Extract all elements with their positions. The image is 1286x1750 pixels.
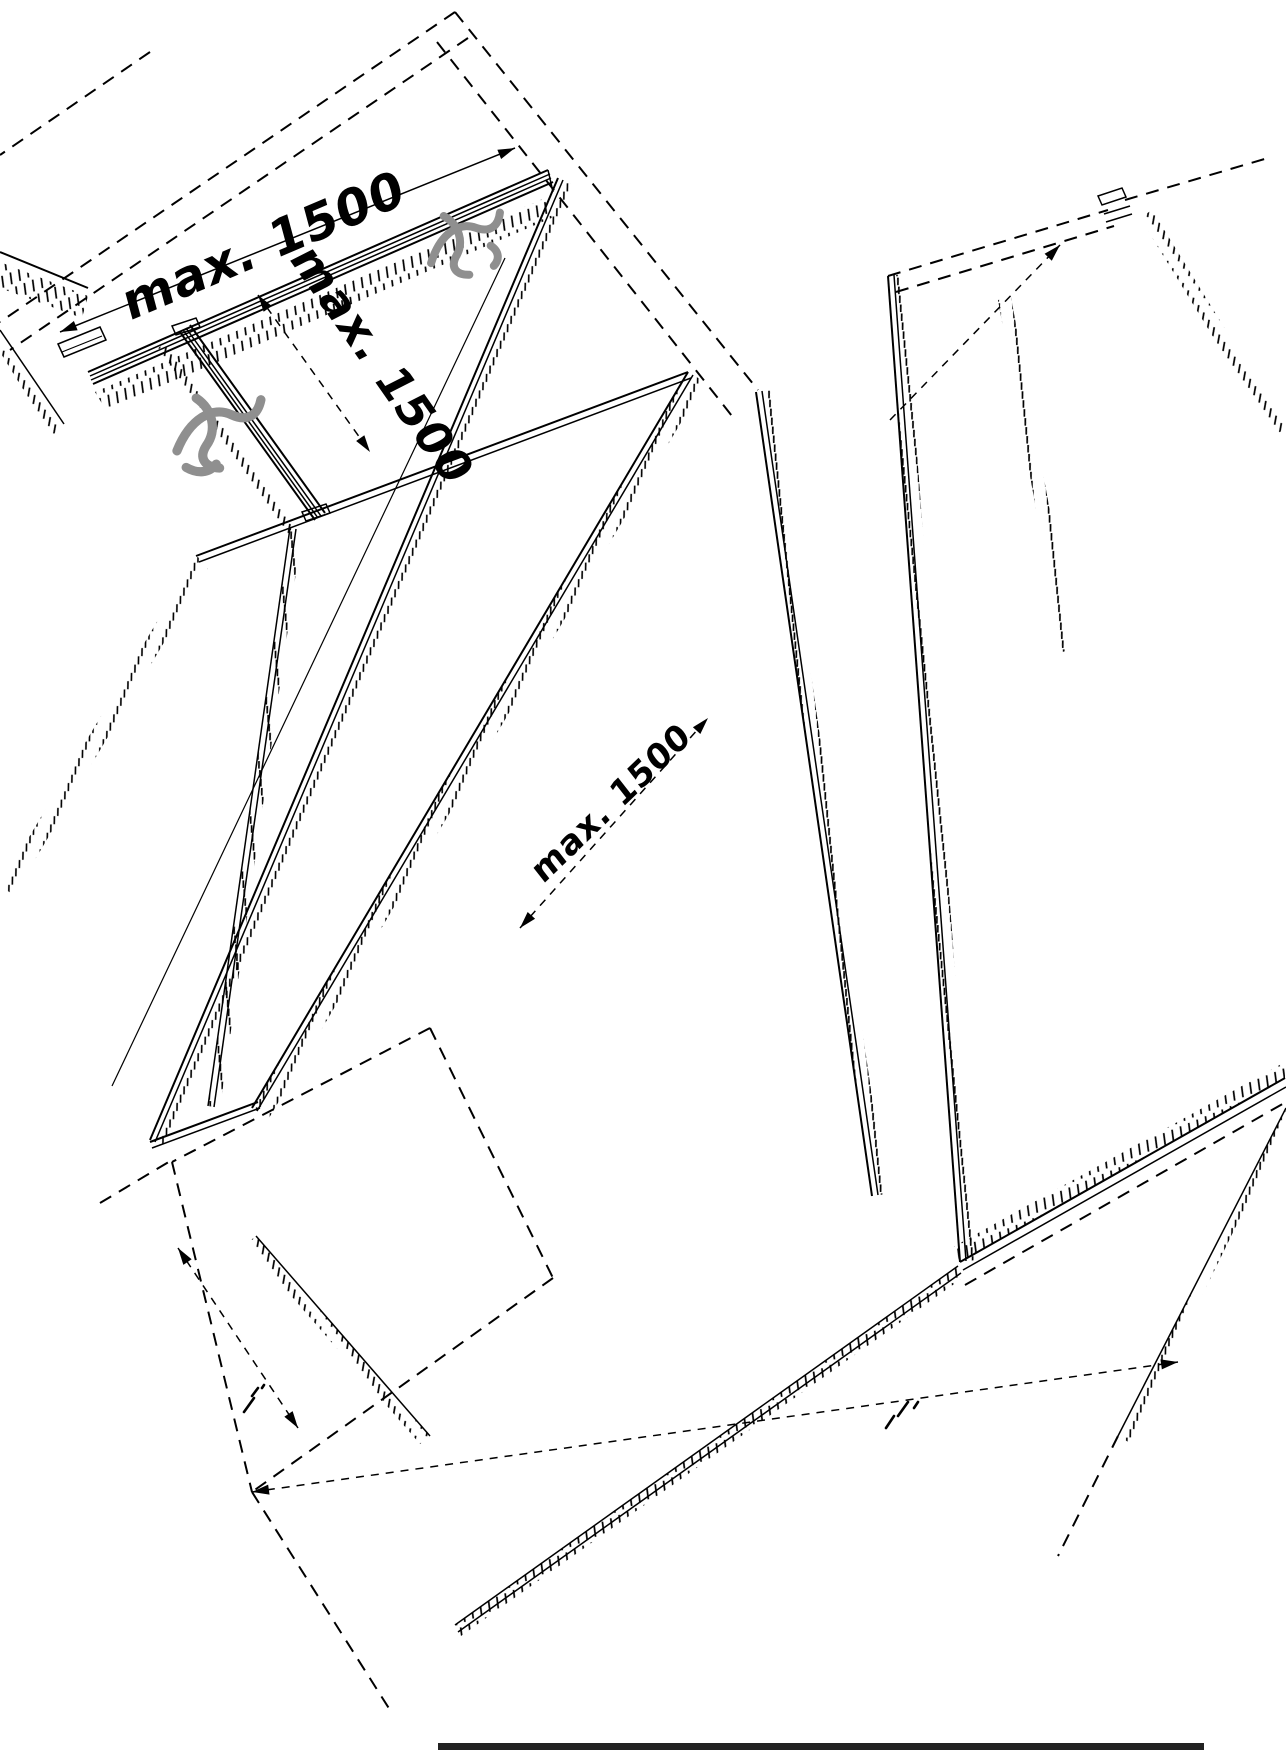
tick <box>914 1402 918 1408</box>
arrowhead <box>356 435 374 455</box>
dimension-line <box>252 1362 1178 1492</box>
dash <box>252 1492 390 1710</box>
isometric-drawing: max. 1500 max. 1500 <box>0 0 1286 1750</box>
hatch-band <box>998 297 1075 652</box>
tick-marks <box>244 1385 264 1412</box>
right-track <box>756 390 886 1196</box>
hatch-band <box>0 556 210 895</box>
ln <box>762 391 878 1195</box>
ln <box>208 528 290 1106</box>
ln <box>256 1236 430 1436</box>
hatch-band <box>1140 210 1286 436</box>
hatch-band <box>888 274 976 1262</box>
corner-bracket <box>1098 188 1126 205</box>
ln <box>548 170 553 192</box>
ln <box>458 1273 961 1632</box>
ln <box>199 378 691 562</box>
hatch-band <box>756 390 886 1196</box>
dash <box>252 1278 553 1492</box>
ln <box>214 529 296 1107</box>
right-panel <box>888 158 1286 1556</box>
arrowhead <box>174 1245 192 1265</box>
dimension-label: max. 1500 <box>524 715 699 892</box>
arrowhead <box>58 321 78 337</box>
ln <box>963 1087 1286 1270</box>
ln <box>960 1078 1285 1262</box>
ln <box>112 258 505 1086</box>
tick-marks <box>886 1402 918 1428</box>
hatch-band <box>953 1062 1285 1262</box>
hatch-band <box>0 334 62 436</box>
dimension-line <box>890 245 1060 420</box>
hatch-band <box>246 1236 430 1444</box>
dash <box>100 1160 172 1203</box>
left-border-profiles <box>0 252 88 436</box>
dash <box>896 226 1114 292</box>
dash <box>0 52 150 155</box>
arrowhead <box>693 715 712 734</box>
tick <box>898 1402 908 1416</box>
bottom-edge-bar <box>438 1743 1204 1750</box>
fastener-stroke <box>487 245 501 266</box>
ln <box>186 328 321 516</box>
ln <box>183 330 318 518</box>
ln <box>180 332 315 520</box>
hatch-band <box>156 340 300 536</box>
ln <box>455 1266 958 1625</box>
dash <box>1125 158 1268 200</box>
dash <box>965 1102 1286 1285</box>
rail-bracket <box>58 327 106 357</box>
arrowhead <box>497 143 517 159</box>
ln <box>1106 214 1132 222</box>
dash <box>430 1028 553 1278</box>
dash <box>888 210 1108 276</box>
dimension-diagonal-spacing: max. 1500 <box>516 715 711 932</box>
tick <box>262 1385 264 1388</box>
ln <box>888 276 960 1262</box>
tick <box>252 1388 258 1396</box>
ln <box>0 330 64 424</box>
ln <box>894 275 966 1261</box>
dash <box>172 1162 252 1492</box>
technical-drawing-page: max. 1500 max. 1500 <box>0 0 1286 1750</box>
ln <box>756 392 872 1196</box>
arrowhead <box>284 1411 302 1431</box>
tick <box>886 1416 894 1428</box>
bottom-edge-profile <box>455 1266 964 1636</box>
dash <box>1058 1436 1118 1556</box>
left-panel <box>0 372 705 1148</box>
ln <box>252 372 688 1108</box>
tick <box>244 1398 254 1412</box>
